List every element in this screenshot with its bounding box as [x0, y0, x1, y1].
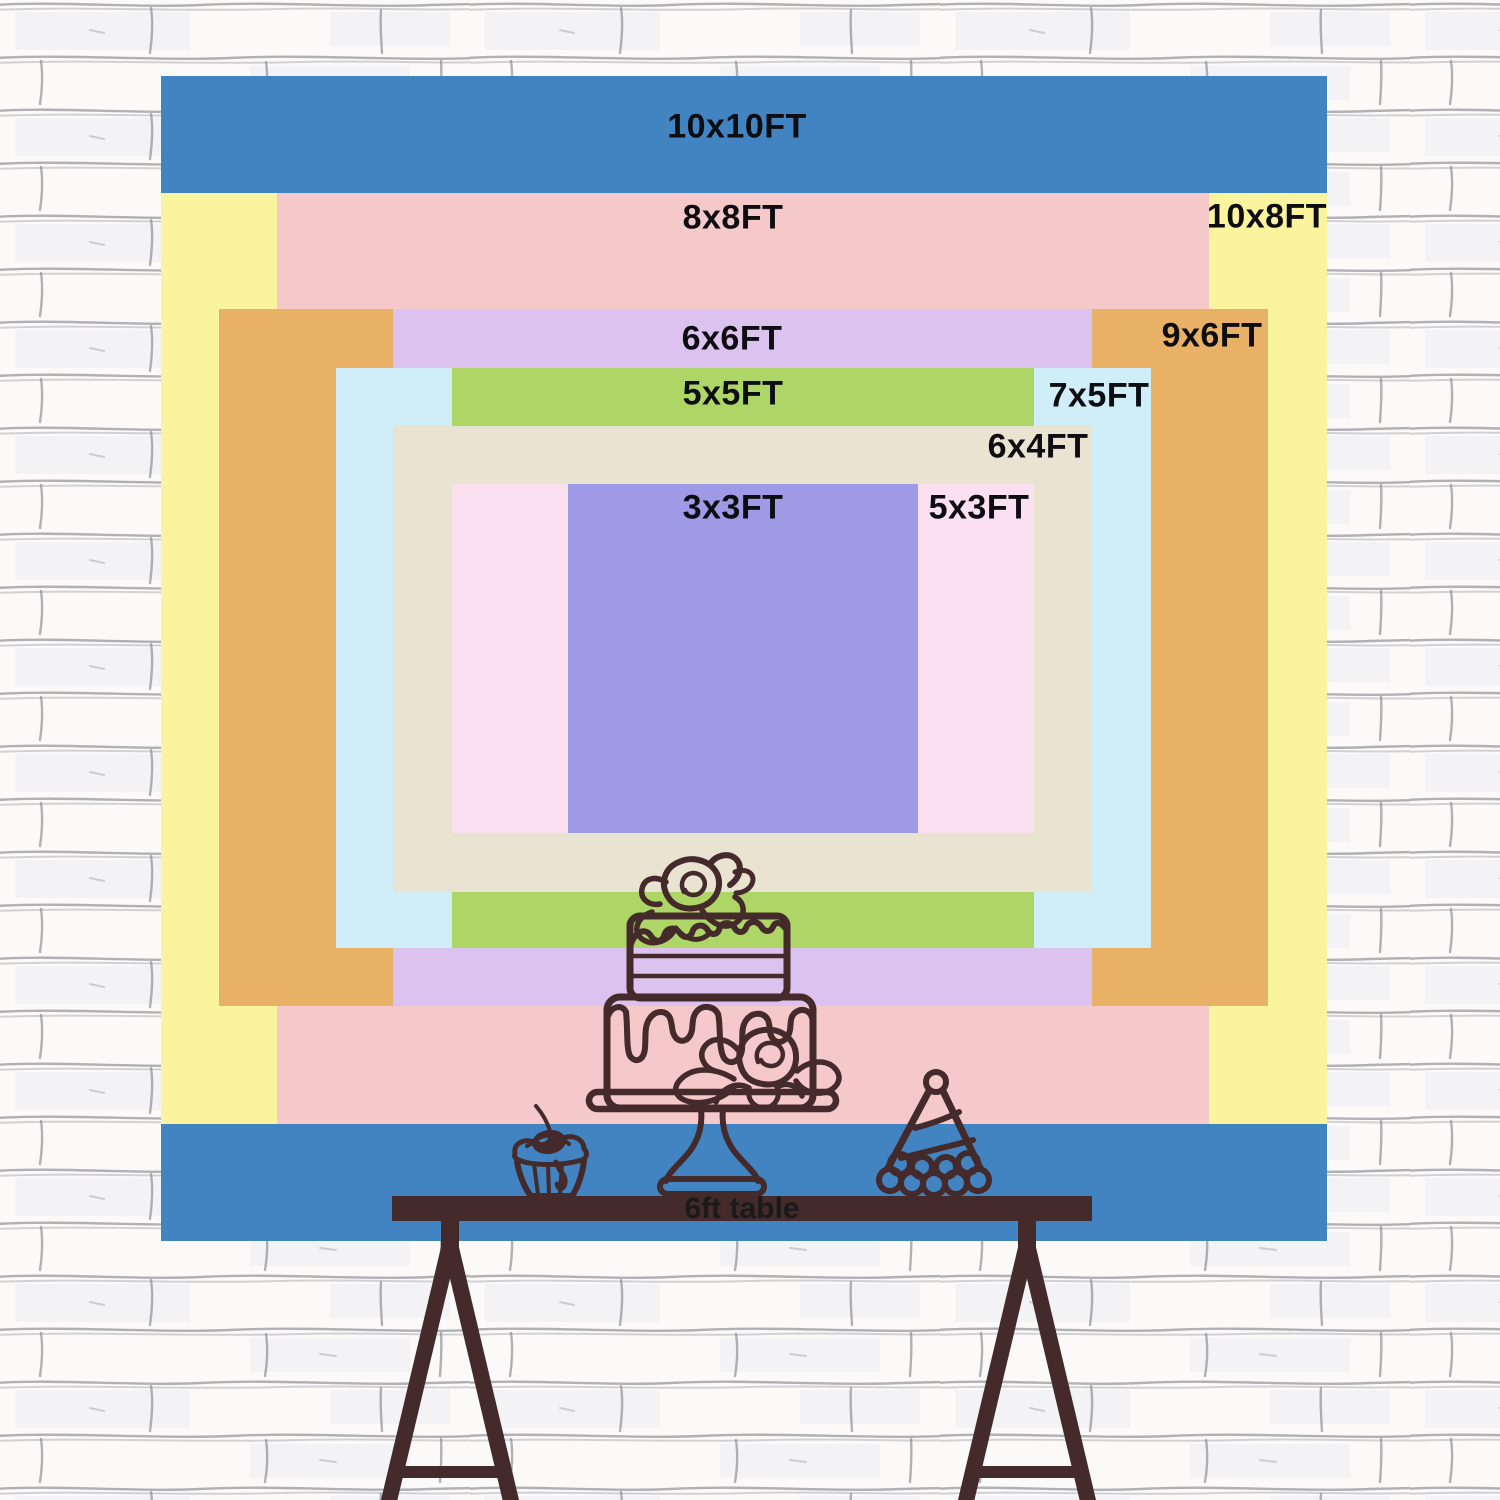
table-leg-right-icon: [965, 1218, 1089, 1500]
table-top: 6ft table: [392, 1196, 1092, 1221]
table-label: 6ft table: [684, 1192, 799, 1226]
table-leg-left-icon: [388, 1218, 512, 1500]
decorations: [0, 0, 1500, 1500]
party-hat-icon: [879, 1072, 989, 1195]
backdrop-size-chart: 10x10FT10x8FT8x8FT9x6FT6x6FT7x5FT5x5FT6x…: [0, 0, 1500, 1500]
tiered-cake-icon: [589, 855, 839, 1194]
cupcake-icon: [514, 1106, 586, 1196]
